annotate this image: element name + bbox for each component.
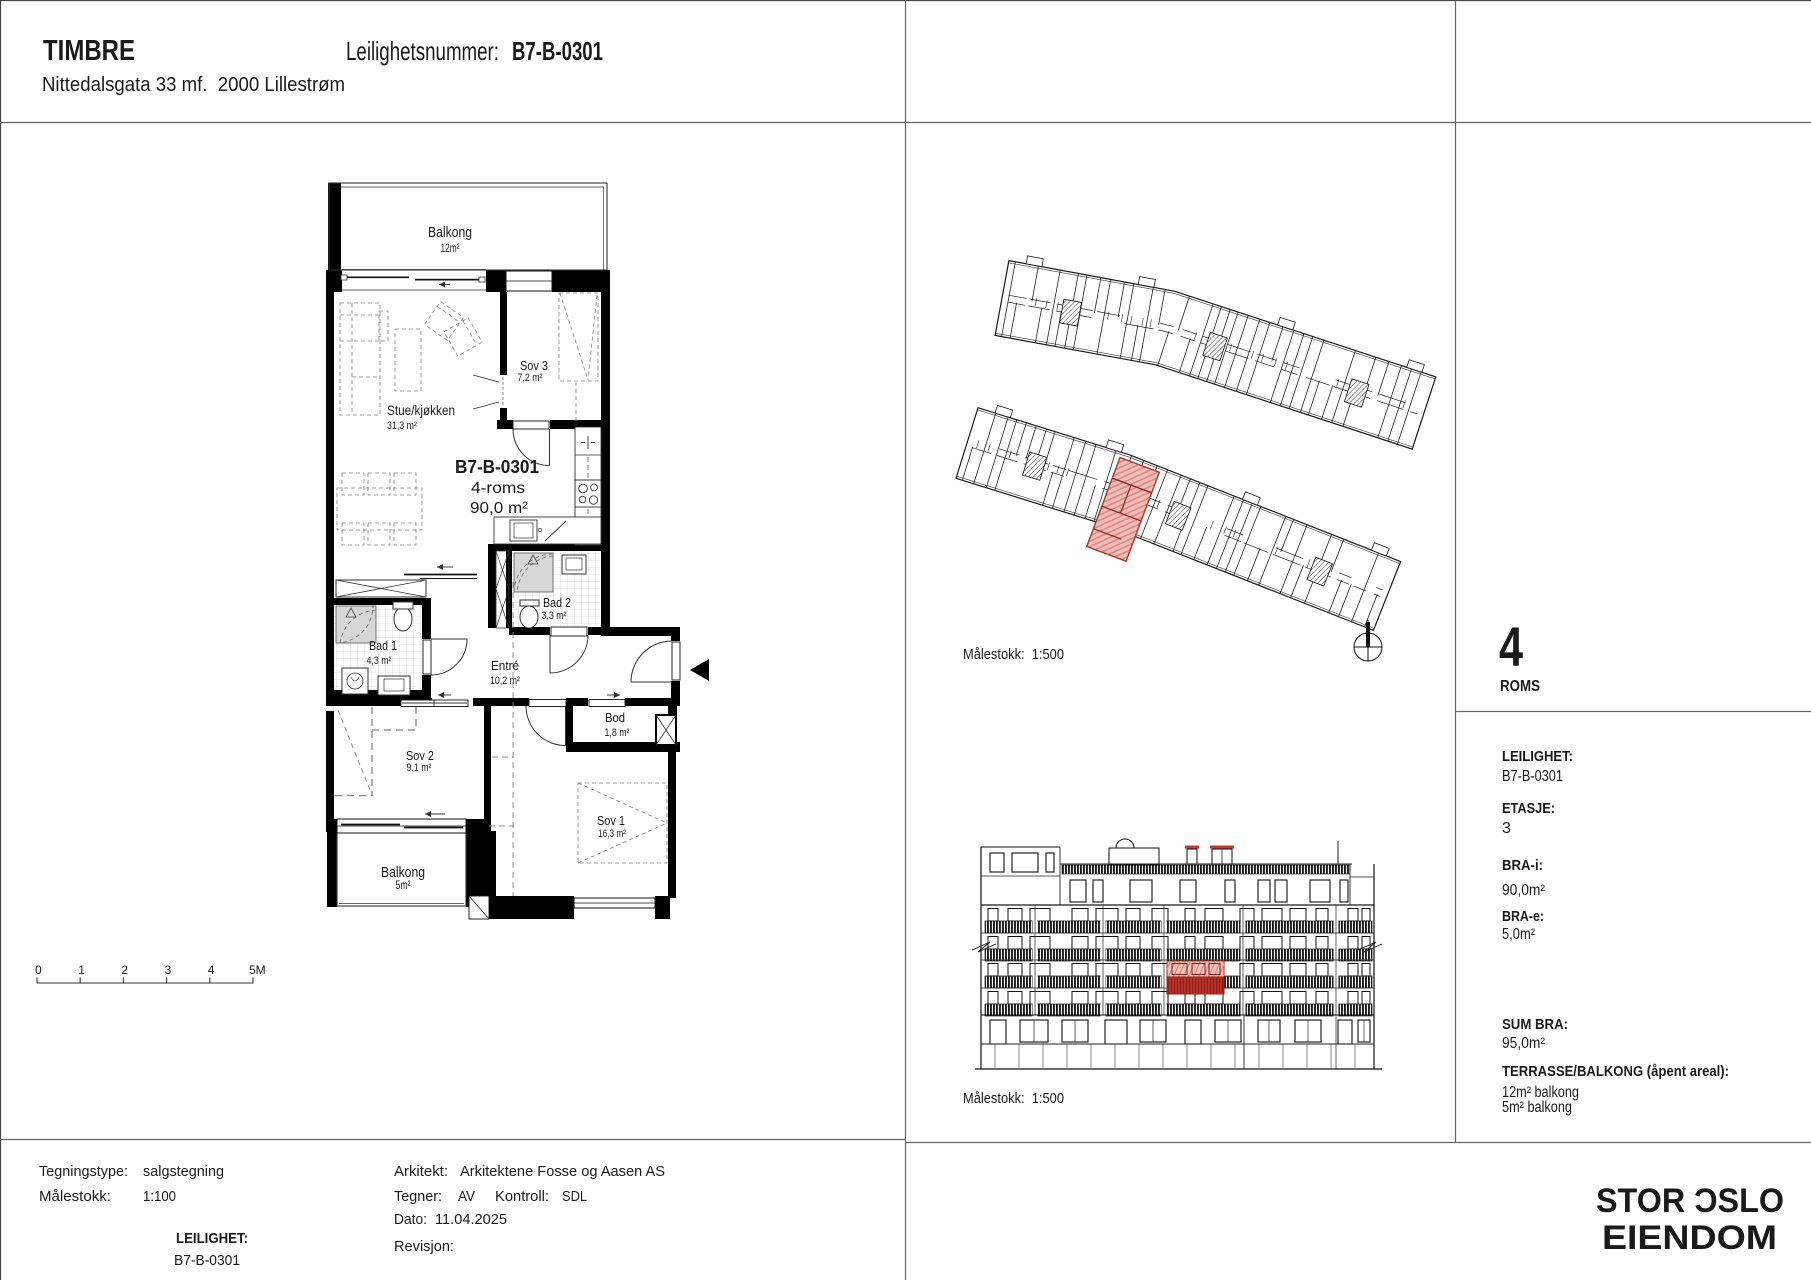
svg-text:B7-B-0301: B7-B-0301 (455, 457, 539, 477)
svg-text:Sov 2: Sov 2 (406, 748, 434, 763)
svg-text:Bad 2: Bad 2 (543, 595, 571, 610)
svg-text:Bod: Bod (605, 710, 625, 725)
svg-text:B7-B-0301: B7-B-0301 (1502, 768, 1563, 785)
svg-text:11.04.2025: 11.04.2025 (435, 1211, 507, 1228)
svg-text:salgstegning: salgstegning (143, 1163, 224, 1180)
svg-text:Entré: Entré (491, 658, 519, 673)
svg-text:3,3 m²: 3,3 m² (542, 610, 567, 622)
svg-text:90,0 m²: 90,0 m² (470, 500, 529, 517)
svg-text:EIENDOM: EIENDOM (1602, 1219, 1777, 1257)
svg-text:Nittedalsgata 33 mf. 2000 Lil: Nittedalsgata 33 mf. 2000 Lillestrøm (42, 74, 345, 96)
svg-text:9,1 m²: 9,1 m² (407, 762, 432, 774)
svg-text:STOR ƆSLO: STOR ƆSLO (1596, 1182, 1784, 1220)
svg-text:3: 3 (165, 963, 172, 977)
svg-text:Sov 1: Sov 1 (597, 813, 625, 828)
svg-text:Bad 1: Bad 1 (369, 638, 397, 653)
svg-text:Dato:: Dato: (394, 1211, 427, 1228)
svg-text:5m²: 5m² (396, 878, 411, 892)
svg-text:LEILIGHET:: LEILIGHET: (176, 1230, 248, 1247)
svg-text:0: 0 (35, 963, 42, 977)
svg-text:ETASJE:: ETASJE: (1502, 801, 1555, 817)
svg-text:Balkong: Balkong (428, 224, 472, 241)
svg-text:1:100: 1:100 (143, 1188, 176, 1205)
svg-text:31,3 m²: 31,3 m² (387, 420, 417, 432)
svg-text:BRA-i:: BRA-i: (1502, 858, 1543, 874)
svg-text:AV: AV (458, 1188, 475, 1205)
svg-text:4-roms: 4-roms (471, 480, 525, 497)
svg-text:B7-B-0301: B7-B-0301 (174, 1252, 240, 1269)
svg-text:LEILIGHET:: LEILIGHET: (1502, 749, 1573, 765)
svg-text:Revisjon:: Revisjon: (394, 1238, 454, 1255)
svg-text:4: 4 (208, 963, 215, 977)
svg-text:1,8 m²: 1,8 m² (605, 727, 630, 739)
svg-text:10,2 m²: 10,2 m² (490, 675, 520, 687)
svg-text:Leilighetsnummer:: Leilighetsnummer: (346, 36, 499, 66)
svg-text:12m²: 12m² (441, 241, 460, 255)
svg-text:Målestokk:: Målestokk: (39, 1188, 111, 1205)
svg-text:SUM BRA:: SUM BRA: (1502, 1017, 1568, 1033)
svg-text:Kontroll:: Kontroll: (495, 1188, 549, 1205)
svg-text:Målestokk: 1:500: Målestokk: 1:500 (963, 646, 1064, 663)
svg-text:Tegningstype:: Tegningstype: (39, 1163, 128, 1180)
svg-text:B7-B-0301: B7-B-0301 (512, 36, 603, 66)
svg-text:5m² balkong: 5m² balkong (1502, 1099, 1572, 1116)
svg-text:TIMBRE: TIMBRE (43, 35, 135, 67)
svg-text:SDL: SDL (562, 1188, 587, 1205)
svg-text:4,3 m²: 4,3 m² (367, 655, 392, 667)
svg-text:Målestokk: 1:500: Målestokk: 1:500 (963, 1090, 1064, 1107)
svg-text:Sov 3: Sov 3 (520, 358, 548, 373)
svg-text:90,0m²: 90,0m² (1502, 882, 1545, 899)
svg-text:ROMS: ROMS (1500, 678, 1540, 695)
svg-text:Tegner:: Tegner: (394, 1188, 442, 1205)
svg-text:5M: 5M (249, 963, 266, 977)
svg-text:Arkitektene Fosse og Aasen AS: Arkitektene Fosse og Aasen AS (460, 1163, 665, 1180)
svg-text:2: 2 (121, 963, 128, 977)
svg-text:7,2 m²: 7,2 m² (518, 372, 543, 384)
svg-text:TERRASSE/BALKONG (åpent areal): TERRASSE/BALKONG (åpent areal): (1502, 1064, 1729, 1080)
svg-text:5,0m²: 5,0m² (1502, 926, 1535, 943)
svg-text:95,0m²: 95,0m² (1502, 1035, 1545, 1052)
svg-text:16,3 m²: 16,3 m² (598, 828, 626, 840)
svg-text:Stue/kjøkken: Stue/kjøkken (387, 402, 455, 418)
svg-text:4: 4 (1499, 615, 1523, 678)
svg-text:1: 1 (78, 963, 85, 977)
svg-text:BRA-e:: BRA-e: (1502, 909, 1544, 925)
svg-text:3: 3 (1502, 820, 1511, 837)
svg-text:Arkitekt:: Arkitekt: (394, 1163, 448, 1180)
